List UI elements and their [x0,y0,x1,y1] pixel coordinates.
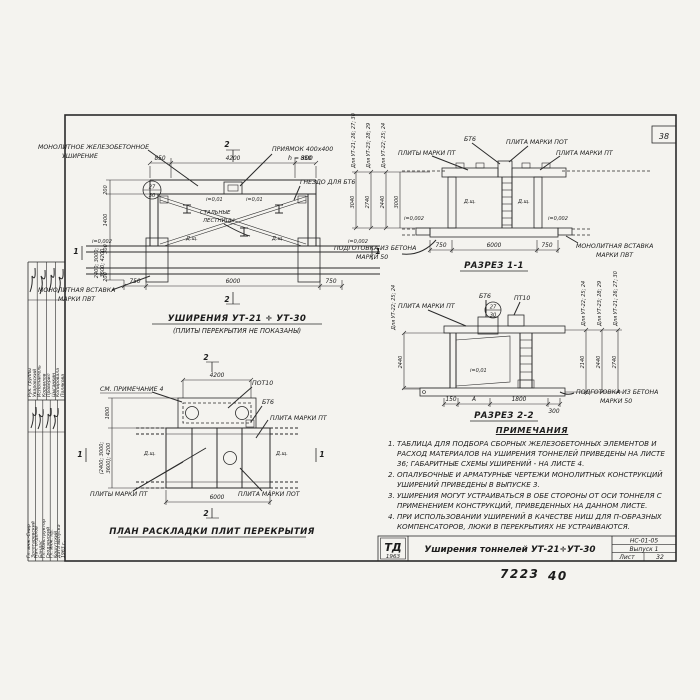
detail-mark-circle: 27 30 [485,302,501,319]
left-dimension: Для УТ-22; 25; 24 2440 [391,285,450,390]
slope-label: i=0,01 [206,197,223,203]
height-group: Для УТ-22; 25; 24 [581,281,587,327]
signature-sidebar: Рук. группы Уваровский Исполнитель Корни… [26,262,67,561]
slope-label: i=0,002 [92,239,112,245]
slab-plan-caption: ПЛАН РАСКЛАДКИ ПЛИТ ПЕРЕКРЫТИЯ [109,527,315,537]
monolithic-widening-label: МОНОЛИТНОЕ ЖЕЛЕЗОБЕТОННОЕ [38,144,149,151]
pt-plate-label: ПЛИТА МАРКИ ПТ [398,303,456,310]
dim-750: 750 [129,279,140,285]
section-mark-1: 1 [319,450,324,459]
bt6-beam [478,317,498,334]
section-mark-2: 2 [203,509,208,518]
logo-text: ТД [384,541,401,554]
bottom-dimension: 750 6000 750 [428,240,560,253]
notes-section: ПРИМЕЧАНИЯ 1. ТАБЛИЦА ДЛЯ ПОДБОРА СБОРНЫ… [388,425,676,533]
detail-mark-circle: 27 30 [143,181,161,199]
handwritten-number-1: 7223 [500,567,539,581]
height-group: Для УТ-22; 25; 24 [381,123,387,169]
height-group: Для УТ-21; 26; 27; 30 [351,113,357,169]
slope-label: i=0,01 [246,197,263,203]
floor-console [416,228,430,235]
height-group: Для УТ-23; 28; 29 [366,123,372,169]
note-item: 2. ОПАЛУБОЧНЫЕ И АРМАТУРНЫЕ ЧЕРТЕЖИ МОНО… [388,470,676,490]
ladder [502,177,512,228]
dim-300: 300 [548,409,559,415]
sidebar-name: Полякова [60,374,66,397]
pt-plates-label: ПЛИТЫ МАРКИ ПТ [90,491,149,498]
height-value: 2740 [612,356,618,369]
dsh-label: Д.щ. [517,199,530,205]
steel-ladders-label2: ЛЕСТНИЦЫ [202,218,235,224]
logo-year: 1963 [386,554,401,560]
height-dimensions: Для УТ-22; 25; 24 Для УТ-23; 28; 29 Для … [565,271,622,394]
corner-sheet-number: 38 [659,132,669,141]
bt6-socket [246,420,254,427]
plate-tab [522,163,530,168]
monolithic-insert-label2: МАРКИ ПВТ [596,252,634,259]
pt-plate-label: ПЛИТА МАРКИ ПТ [270,415,328,422]
drawing-title: Уширения тоннелей УТ-21÷УТ-30 [424,545,595,555]
top-dimension: 4200 [181,373,253,398]
plan-caption: УШИРЕНИЯ УТ-21 ÷ УТ-30 [168,314,307,324]
pit-label: ПРИЯМОК 400х400 [272,146,333,153]
hatch-opening [186,407,199,420]
dim-4200: 4200 [210,373,225,379]
concrete-base-label2: МАРКИ 50 [600,398,632,405]
detail-mark-top: 27 [149,185,156,191]
plan-subcaption: (ПЛИТЫ ПЕРЕКРЫТИЯ НЕ ПОКАЗАНЫ) [173,327,301,335]
note-item: 4. ПРИ ИСПОЛЬЗОВАНИИ УШИРЕНИЙ В КАЧЕСТВЕ… [388,512,676,532]
slope-label: i=0,002 [548,216,568,222]
dsh-label: Д.щ. [185,236,198,242]
section-2-2-drawing: i=0,01 27 30 ПЛИТА МАРКИ ПТ БТ6 ПТ10 ПОД… [391,271,658,421]
floor-slab [420,388,565,396]
monolithic-insert-label: МОНОЛИТНАЯ ВСТАВКА [576,243,653,250]
handwritten-numbers: 7223 40 [500,567,568,583]
chamber-outline [450,333,510,388]
dim-1400: 1400 [103,214,109,227]
ladder [518,333,534,388]
dim-850: 850 [300,156,311,162]
title-block: ТД 1963 Уширения тоннелей УТ-21÷УТ-30 НС… [378,536,676,561]
bt6-label: БТ6 [464,136,476,143]
pt-plates-label: ПЛИТЫ МАРКИ ПТ [398,150,457,157]
cover-plate [442,168,498,177]
dim-200: 200 [103,272,109,282]
dim-A: А [471,397,476,403]
height-group: Для УТ-21; 26; 27; 30 [613,271,619,327]
dim-1800: 1800 [105,407,111,420]
widening-inner-dashed [183,403,251,423]
monolithic-insert-block [298,238,320,282]
dim-6000: 6000 [226,279,241,285]
dsh-label: Д.щ. [463,199,476,205]
monolithic-insert-label2: МАРКИ ПВТ [58,296,96,303]
steel-ladders-label: СТАЛЬНЫЕ [200,210,231,216]
height-value: 2440 [596,356,602,369]
detail-mark-bottom: 30 [490,313,497,319]
dim-150: 150 [445,397,456,403]
height-value: 2440 [380,196,386,209]
height-value: 2740 [365,196,371,209]
cover-plate [512,168,566,177]
dim-1800: 1800 [512,397,527,403]
dsh-label: Д.щ. [275,451,288,457]
height-value-3000: 3000 [394,196,400,209]
height-dimensions: Для УТ-21; 26; 27; 30 Для УТ-23; 28; 29 … [350,113,430,230]
corner-sheet-number-box: 38 [652,126,676,143]
slab-plan-drawing: Д.щ. Д.щ. СМ. ПРИМЕЧАНИЕ 4 ПОТ10 БТ6 ПЛИ… [77,353,327,537]
monolithic-insert-label: МОНОЛИТНАЯ ВСТАВКА [38,287,115,294]
pot-plate-label: ПЛИТА МАРКИ ПОТ [506,139,569,146]
dim-200: 200 [103,185,109,195]
dim-variable-1: (2400; 3000; [99,442,105,475]
pt10-plate [508,315,524,326]
publisher-logo: ТД 1963 [381,538,406,560]
dim-variable-2: 3600); 4200 [106,443,112,474]
dsh-label: Д.щ. [143,451,156,457]
height-value: 2440 [398,356,404,369]
section-mark-2: 2 [203,353,208,362]
dim-750: 750 [541,243,552,249]
section-mark-2: 2 [224,295,229,304]
monolithic-widening-label2: УШИРЕНИЕ [62,153,98,160]
plan-drawing: 27 30 МОНОЛИТНОЕ ЖЕЛЕЗОБЕТОННОЕ УШИРЕНИЕ… [38,140,381,335]
signature-scribbles [31,407,58,429]
height-group: Для УТ-23; 28; 29 [597,281,603,327]
pt-plate-label: ПЛИТА МАРКИ ПТ [556,150,614,157]
height-value: 2140 [580,356,586,369]
note-item: 1. ТАБЛИЦА ДЛЯ ПОДБОРА СБОРНЫХ ЖЕЛЕЗОБЕТ… [388,439,676,469]
sheet-number: 32 [656,554,664,561]
section-mark-1: 1 [73,247,78,256]
dim-750: 750 [325,279,336,285]
slope-label: i=0,01 [470,368,487,374]
hatch-opening [236,407,249,420]
slope-label: i=0,002 [404,216,424,222]
height-value: 3040 [350,196,356,209]
drawing-sheet: 38 Рук. группы Уваровский Исполнитель Ко… [0,0,700,700]
bottom-dimension: 750 6000 750 [122,279,344,290]
detail-mark-top: 27 [490,305,497,311]
handwritten-number-2: 40 [547,569,568,583]
dim-750: 750 [435,243,446,249]
series-code: НС-01-05 [630,538,658,545]
tunnel-wall [534,177,542,228]
bt6-beam [498,161,512,177]
slab-field [166,428,270,488]
section-1-1-drawing: Д.щ. Д.щ. i=0,002 i=0,002 ПЛИТЫ МАРКИ ПТ… [334,113,653,271]
dim-6000: 6000 [487,243,502,249]
section-mark-2: 2 [224,140,229,149]
bt6-socket-label: ГНЕЗДО ДЛЯ БТ6 [300,179,355,186]
section-2-2-caption: РАЗРЕЗ 2-2 [474,411,534,421]
top-slab [444,326,565,333]
monolithic-insert-block [146,238,168,282]
see-note-label: СМ. ПРИМЕЧАНИЕ 4 [100,386,163,393]
tunnel-wall [448,177,456,228]
widening-outline [150,180,316,246]
concrete-base-label: ПОДГОТОВКА ИЗ БЕТОНА [334,245,416,252]
tunnel-dashed-band [136,428,300,488]
pot-plate-label: ПЛИТА МАРКИ ПОТ [238,491,301,498]
pot10-label: ПОТ10 [252,380,273,387]
issue-number: Выпуск 1 [630,546,659,553]
bt6-label: БТ6 [479,293,491,300]
section-mark-1: 1 [77,450,82,459]
dim-6000: 6000 [210,495,225,501]
bt6-label: БТ6 [262,399,274,406]
note-item: 3. УШИРЕНИЯ МОГУТ УСТРАИВАТЬСЯ В ОБЕ СТО… [388,491,676,511]
dsh-label: Д.щ. [271,236,284,242]
floor-console [558,228,572,235]
floor-slab [430,228,558,237]
concrete-base-label2: МАРКИ 50 [356,254,388,261]
height-group: Для УТ-22; 25; 24 [391,285,397,331]
section-1-1-caption: РАЗРЕЗ 1-1 [464,261,524,271]
plate-tab [476,163,484,168]
leader-lines [402,143,578,254]
left-dimension: 200 1400 300 2400; 3000; 3600; 4200 200 [94,180,150,282]
notes-heading: ПРИМЕЧАНИЯ [388,425,676,436]
sheet-label: Лист [618,554,635,561]
widening-box [178,398,256,428]
pt10-label: ПТ10 [514,295,530,302]
dim-850: 850 [154,156,165,162]
sidebar-name: 1963 г. [61,541,67,558]
